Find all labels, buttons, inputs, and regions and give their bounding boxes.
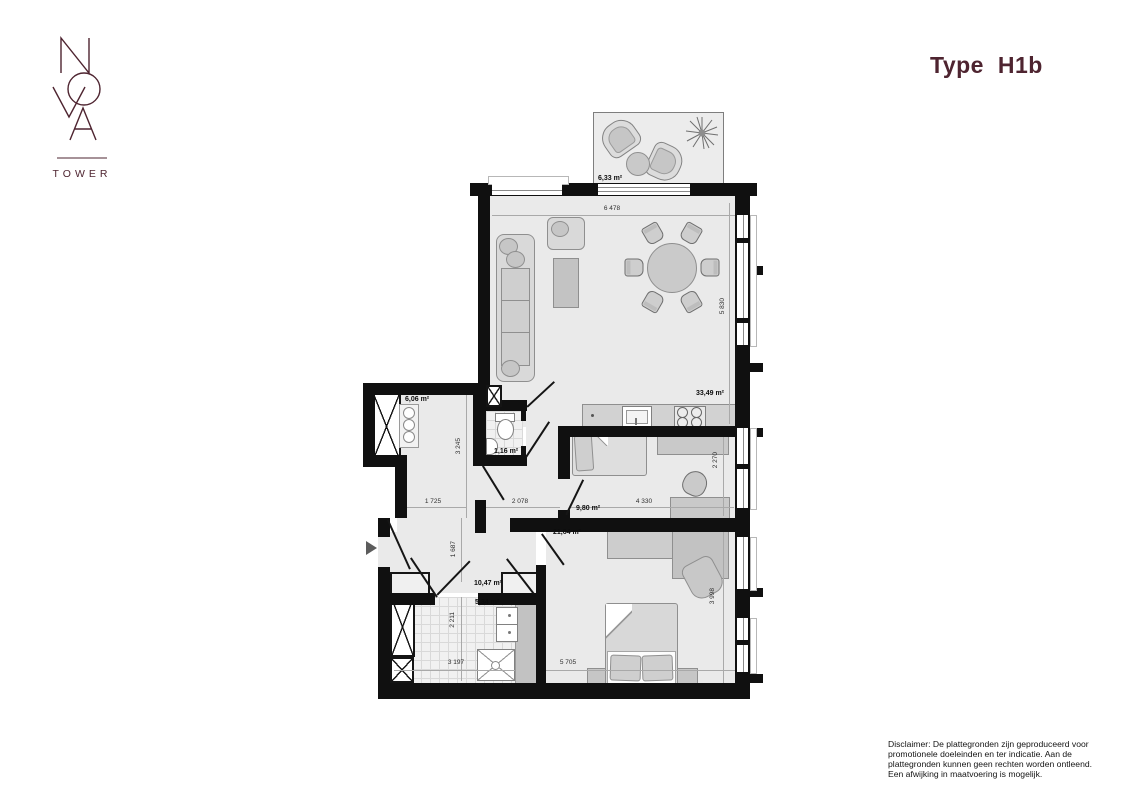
- dimension-line: [461, 518, 462, 582]
- page-title: Type H1b: [930, 52, 1043, 79]
- sofa-pillow: [501, 360, 520, 377]
- toilet-bowl: [497, 419, 514, 440]
- corridor-floor: [486, 466, 558, 518]
- dim-storage-width: 1 725: [413, 498, 453, 505]
- dining-table: [647, 243, 697, 293]
- shaft: [390, 597, 415, 657]
- wall: [536, 565, 546, 683]
- area-bedroom-small: 9,80 m²: [576, 505, 600, 512]
- meter-dial: [403, 431, 415, 443]
- dimension-line: [394, 670, 515, 671]
- dim-storage-height: 3 245: [455, 438, 462, 454]
- shaft: [486, 385, 502, 407]
- dim-hall-height: 1 687: [450, 541, 457, 557]
- wall: [558, 426, 735, 437]
- window: [737, 618, 748, 672]
- basin-drain: [508, 631, 511, 634]
- dimension-line: [400, 507, 466, 508]
- dimension-line: [729, 203, 730, 424]
- nova-tower-logo: TOWER: [45, 36, 125, 188]
- sofa-pillow: [506, 251, 525, 268]
- area-balcony: 6,33 m²: [598, 175, 622, 182]
- area-bathroom: 5,34 m²: [475, 599, 499, 606]
- dimension-line: [723, 532, 724, 683]
- desk: [670, 497, 730, 520]
- area-living: 33,49 m²: [696, 390, 724, 397]
- window-sill: [750, 428, 757, 510]
- sink-basin: [626, 410, 648, 424]
- wall: [378, 683, 750, 699]
- wall: [363, 383, 480, 395]
- facade-fin: [748, 363, 763, 372]
- dim-corridor-width: 2 078: [500, 498, 540, 505]
- page-canvas: TOWER Type H1b: [0, 0, 1131, 800]
- dimension-line: [546, 670, 735, 671]
- dim-bedroom-master-height: 3 998: [709, 588, 716, 604]
- wall: [378, 593, 390, 697]
- dining-chair: [625, 259, 644, 277]
- dimension-line: [492, 215, 735, 216]
- bed-pillow: [642, 654, 674, 681]
- entrance-floor: [378, 535, 392, 567]
- sofa-cushion: [501, 268, 530, 302]
- dim-bedroom-small-width: 4 330: [624, 498, 664, 505]
- bed-pillow: [610, 654, 642, 681]
- sheet-fold: [606, 604, 632, 640]
- balcony-table: [626, 152, 650, 176]
- logo-letters: [53, 38, 107, 158]
- wall: [475, 500, 486, 533]
- dim-living-height: 5 830: [719, 298, 726, 314]
- logo-subtitle: TOWER: [53, 168, 112, 180]
- window-sill: [750, 618, 757, 674]
- coffee-table: [553, 258, 579, 308]
- basin-drain: [508, 614, 511, 617]
- window-mullion: [737, 238, 748, 243]
- disclaimer: Disclaimer: De plattegronden zijn geprod…: [888, 739, 1120, 779]
- corridor-floor: [526, 403, 558, 466]
- wall: [473, 383, 486, 466]
- washbasin: [496, 607, 518, 625]
- disclaimer-line: plattegronden kunnen geen rechten worden…: [888, 759, 1120, 769]
- shaft: [372, 393, 401, 460]
- disclaimer-line: Disclaimer: De plattegronden zijn geprod…: [888, 739, 1120, 749]
- wardrobe: [607, 531, 676, 559]
- dim-bedroom-small-height: 2 270: [712, 452, 719, 468]
- wall: [478, 196, 490, 395]
- dining-chair: [701, 259, 720, 277]
- window-mullion: [737, 318, 748, 323]
- dimension-line: [723, 430, 724, 516]
- window-mullion: [737, 640, 748, 645]
- window-sill: [750, 537, 757, 591]
- area-toilet: 1,16 m²: [494, 448, 518, 455]
- window: [737, 215, 748, 345]
- window: [492, 184, 562, 195]
- plant-icon: [684, 115, 720, 151]
- window-mullion: [737, 464, 748, 469]
- meter-dial: [403, 407, 415, 419]
- area-hall: 10,47 m²: [474, 580, 502, 587]
- shower-drain: [491, 661, 500, 670]
- dimension-line: [461, 597, 462, 681]
- duct-wall: [515, 595, 538, 685]
- disclaimer-line: promotionele doeleinden en ter indicatie…: [888, 749, 1120, 759]
- sink-faucet: [635, 418, 637, 425]
- wall: [481, 455, 527, 466]
- dim-living-width: 6 478: [592, 205, 632, 212]
- wall: [510, 518, 748, 532]
- sofa-cushion: [501, 300, 530, 334]
- dim-bedroom-master-width: 5 705: [548, 659, 588, 666]
- facade-fin: [748, 674, 763, 683]
- wall: [395, 455, 407, 518]
- disclaimer-line: Een afwijking in maatvoering is mogelijk…: [888, 769, 1120, 779]
- armchair-pillow: [551, 221, 569, 237]
- kitchen-dot: [591, 414, 594, 417]
- dimension-line: [481, 507, 560, 508]
- balcony-sliding-door: [598, 184, 690, 195]
- meter-dial: [403, 419, 415, 431]
- dim-bathroom-height: 2 211: [449, 612, 456, 628]
- window: [737, 537, 748, 589]
- dim-bathroom-width: 3 197: [436, 659, 476, 666]
- window-sill: [750, 215, 757, 347]
- area-bedroom-master: 21,64 m²: [553, 529, 581, 536]
- wall: [558, 426, 570, 479]
- area-storage: 6,06 m²: [405, 396, 429, 403]
- washbasin: [496, 624, 518, 642]
- dimension-line: [466, 395, 467, 518]
- corridor-floor: [404, 456, 475, 518]
- entrance-arrow-icon: [366, 541, 377, 555]
